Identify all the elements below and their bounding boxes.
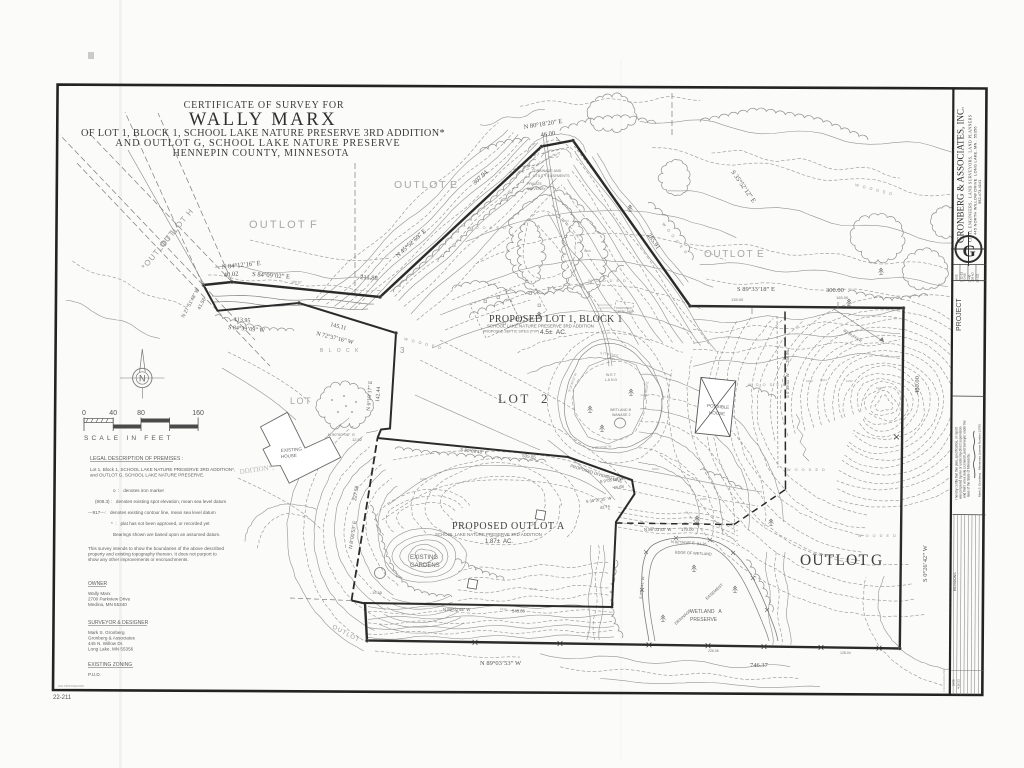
svg-text:o : denotes iron marker: o : denotes iron marker (113, 488, 165, 493)
svg-text:180.57: 180.57 (291, 280, 302, 285)
svg-text:S 89°33’18” E: S 89°33’18” E (737, 286, 775, 293)
svg-text:4.5± AC.: 4.5± AC. (540, 329, 567, 336)
svg-text:show any other improvements or: show any other improvements or encroachm… (88, 557, 189, 562)
svg-text:211.88: 211.88 (360, 274, 378, 282)
svg-text:Mark S. Gronberg Minnesota: Mark S. Gronberg Minnesota License Numbe… (978, 424, 982, 497)
svg-text:165.00: 165.00 (836, 295, 849, 300)
svg-text:PROJECT: PROJECT (956, 298, 963, 331)
svg-text:P.U.D.: P.U.D. (88, 672, 101, 677)
svg-text:F: F (310, 219, 317, 231)
svg-text:94.26: 94.26 (697, 542, 707, 546)
svg-text:128.04: 128.04 (840, 651, 851, 655)
svg-text:1032: 1032 (846, 379, 853, 383)
svg-text:WETLAND B: WETLAND B (610, 408, 632, 412)
svg-text:SURVEYOR & DESIGNER: SURVEYOR & DESIGNER (88, 620, 149, 626)
svg-text:1012: 1012 (500, 607, 507, 611)
svg-text:1024: 1024 (820, 378, 827, 382)
svg-text:E: E (450, 179, 457, 191)
svg-text:N 89°03’53” W: N 89°03’53” W (644, 527, 671, 532)
svg-text:WALLY MARX: WALLY MARX (189, 110, 337, 130)
svg-text:WETLAND A: WETLAND A (690, 609, 722, 615)
svg-text:DRAINAGE AND: DRAINAGE AND (534, 169, 562, 173)
svg-text:Wally Marx: Wally Marx (88, 591, 111, 596)
svg-text:B L O C K: B L O C K (320, 348, 360, 354)
svg-text:PROPOSED OUTLOT A: PROPOSED OUTLOT A (452, 521, 565, 532)
svg-text:laws of the State of Minnesota: laws of the State of Minnesota. (967, 453, 971, 497)
svg-text:SEPTIC AREA: SEPTIC AREA (616, 310, 634, 314)
svg-text:N: N (139, 374, 146, 384)
svg-text:80: 80 (137, 410, 145, 417)
svg-text:2021-PROPOSED.DWG: 2021-PROPOSED.DWG (58, 685, 84, 688)
svg-text:1040: 1040 (876, 386, 883, 390)
svg-text:JOB NO: JOB NO (971, 272, 975, 282)
svg-text:548.66: 548.66 (512, 609, 525, 614)
svg-text:Medina, MN 55340: Medina, MN 55340 (88, 602, 127, 607)
svg-text:DATE: DATE (952, 679, 956, 686)
svg-text:2700 Parkview Drive: 2700 Parkview Drive (88, 597, 131, 602)
svg-text:G: G (963, 242, 976, 261)
svg-text:GARDENS: GARDENS (410, 563, 440, 569)
svg-text:746.37: 746.37 (750, 662, 769, 669)
svg-text:Lot 1, Block 1, SCHOOL LAKE NA: Lot 1, Block 1, SCHOOL LAKE NATURE PRESE… (90, 467, 235, 472)
svg-text:EXISTING: EXISTING (410, 555, 438, 561)
svg-text:Long Lake, MN 55356: Long Lake, MN 55356 (88, 647, 134, 652)
svg-text:PRESERVE: PRESERVE (690, 617, 718, 623)
svg-text:W E T: W E T (606, 373, 617, 377)
svg-text:C:\22-211\22211CS01: C:\22-211\22211CS01 (943, 668, 946, 692)
svg-text:PRIVATE: PRIVATE (527, 182, 542, 186)
svg-text:W O O D E D: W O O D E D (787, 468, 826, 472)
svg-text:22-211: 22-211 (976, 273, 980, 282)
svg-text:1000: 1000 (700, 497, 707, 501)
svg-text:LOT: LOT (290, 396, 312, 406)
svg-text:W O O D E D: W O O D E D (468, 226, 507, 230)
svg-text:W O O D E D: W O O D E D (748, 383, 787, 387)
svg-text:E: E (757, 249, 764, 260)
svg-text:142.44: 142.44 (375, 386, 382, 402)
svg-text:Mark S. Gronberg: Mark S. Gronberg (88, 630, 125, 635)
svg-text:EXISTING ZONING: EXISTING ZONING (88, 662, 132, 668)
svg-text:DATE: DATE (955, 274, 959, 281)
svg-text:SCHOOL LAKE NATURE PRESERVE 3R: SCHOOL LAKE NATURE PRESERVE 3RD ADDITION (435, 532, 542, 537)
svg-text:W O O D E D: W O O D E D (858, 534, 897, 538)
svg-text:W O O D E D: W O O D E D (588, 279, 627, 283)
svg-text:Gronberg & Associates: Gronberg & Associates (88, 636, 136, 641)
svg-text:445 N. Willow Dr.: 445 N. Willow Dr. (88, 641, 123, 646)
svg-text:2: 2 (541, 391, 548, 406)
svg-text:REVISIONS: REVISIONS (953, 572, 957, 591)
svg-text:S 0°26’42” W: S 0°26’42” W (922, 544, 929, 582)
svg-text:N 89°02’55” W: N 89°02’55” W (443, 607, 470, 612)
svg-text:N 89°03’53” W: N 89°03’53” W (480, 660, 522, 667)
svg-text:SCHOOL LAKE NATURE PRESERVE 3R: SCHOOL LAKE NATURE PRESERVE 3RD ADDITION (487, 324, 594, 329)
svg-text:4-26-23: 4-26-23 (957, 679, 961, 689)
svg-text:1004: 1004 (562, 219, 569, 223)
svg-text:---917---: denotes existing: ---917---: denotes existing contour line… (88, 510, 216, 515)
svg-text:OUTLOT: OUTLOT (394, 179, 447, 191)
svg-text:SCALE IN FEET: SCALE IN FEET (84, 435, 174, 442)
svg-text:LEGAL DESCRIPTION OF PREMISES: LEGAL DESCRIPTION OF PREMISES : (90, 456, 183, 462)
svg-text:OUTLOT: OUTLOT (249, 219, 307, 231)
svg-text:(908.3) : denotes existing s: (908.3) : denotes existing spot elevatio… (95, 499, 226, 504)
svg-text:996: 996 (610, 357, 615, 361)
svg-text:22-211: 22-211 (53, 695, 72, 701)
svg-text:160: 160 (192, 410, 204, 417)
svg-text:OWNER: OWNER (88, 581, 108, 587)
svg-text:40: 40 (109, 410, 117, 417)
svg-text:HENNEPIN COUNTY, MINNESOTA: HENNEPIN COUNTY, MINNESOTA (173, 148, 350, 159)
svg-text:DRIVEWAY: DRIVEWAY (527, 187, 546, 191)
svg-text:L A N D: L A N D (605, 378, 617, 382)
svg-text:1004: 1004 (652, 467, 659, 471)
svg-text:WANASE 2: WANASE 2 (612, 413, 630, 417)
svg-text:0: 0 (82, 410, 86, 417)
svg-text:PROPOSED SEPTIC SITES (TYP): PROPOSED SEPTIC SITES (TYP) (483, 330, 539, 334)
svg-text:* : plat has not been appro: * : plat has not been approved, or recor… (111, 521, 210, 526)
svg-text:480.00: 480.00 (914, 376, 921, 394)
svg-text:→19.55: →19.55 (368, 590, 383, 595)
svg-text:1008: 1008 (584, 249, 591, 253)
svg-text:12.52: 12.52 (352, 437, 363, 442)
svg-text:and OUTLOT G, SCHOOL LAKE NATU: and OUTLOT G, SCHOOL LAKE NATURE PRESERV… (90, 473, 204, 478)
svg-text:OUTLOT: OUTLOT (800, 552, 869, 569)
svg-text:Bearings shown are based upon: Bearings shown are based upon an assumed… (113, 532, 221, 537)
svg-text:1016: 1016 (530, 587, 537, 591)
svg-text:226.06: 226.06 (708, 649, 719, 653)
svg-text:GRONBERG & ASSOCIATES, INC.: GRONBERG & ASSOCIATES, INC. (956, 107, 966, 243)
svg-text:1.87± AC.: 1.87± AC. (485, 539, 513, 545)
svg-text:property and existing topograp: property and existing topography thereon… (88, 552, 217, 557)
svg-text:258.56: 258.56 (785, 350, 790, 363)
svg-text:This survey intends to show th: This survey intends to show the boundari… (88, 546, 225, 551)
svg-text:170.00: 170.00 (681, 527, 694, 532)
svg-text:SCALE: SCALE (963, 273, 967, 282)
svg-text:UTILITY EASEMENTS: UTILITY EASEMENTS (533, 174, 570, 178)
svg-text:G: G (871, 552, 882, 569)
svg-text:OUTLOT: OUTLOT (704, 249, 754, 260)
svg-text:1008: 1008 (806, 379, 813, 383)
svg-text:3: 3 (400, 346, 405, 355)
svg-text:135.00: 135.00 (731, 297, 744, 302)
svg-text:300.00: 300.00 (826, 287, 844, 294)
svg-text:1008: 1008 (420, 477, 427, 481)
svg-text:952-473-4141: 952-473-4141 (977, 180, 982, 204)
svg-text:LOT: LOT (498, 391, 531, 406)
